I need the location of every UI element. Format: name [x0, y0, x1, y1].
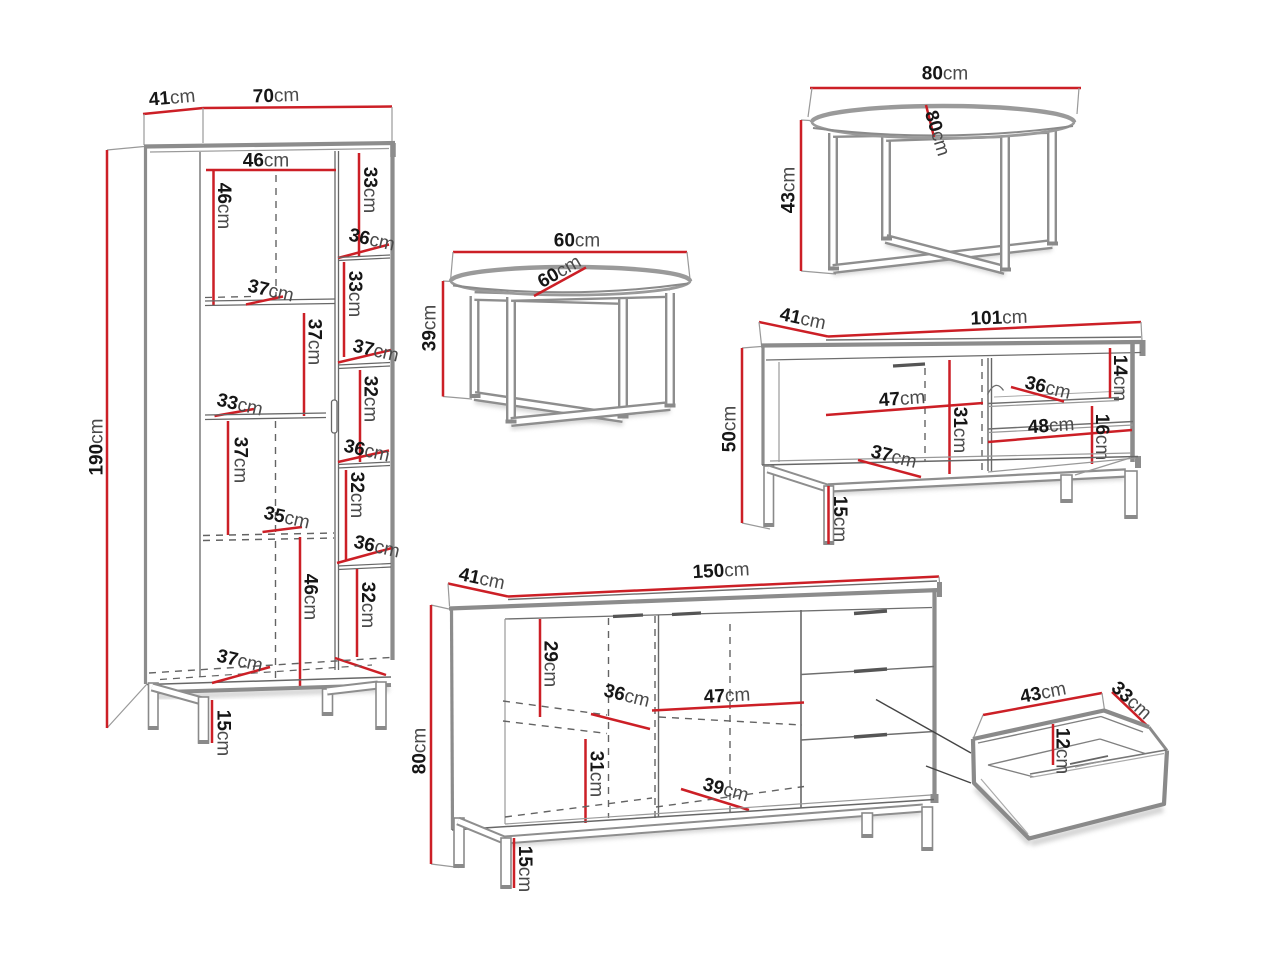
svg-text:41cm: 41cm — [148, 86, 196, 111]
svg-text:46cm: 46cm — [243, 151, 289, 172]
svg-text:80cm: 80cm — [410, 728, 431, 774]
svg-text:47cm: 47cm — [703, 684, 751, 707]
svg-text:48cm: 48cm — [1027, 414, 1075, 438]
svg-text:46cm: 46cm — [213, 183, 234, 229]
svg-text:70cm: 70cm — [252, 85, 299, 108]
svg-text:33cm: 33cm — [359, 167, 380, 213]
svg-text:80cm: 80cm — [922, 64, 968, 85]
svg-text:150cm: 150cm — [692, 559, 750, 583]
svg-text:47cm: 47cm — [878, 387, 926, 411]
svg-text:32cm: 32cm — [359, 376, 380, 422]
svg-text:15cm: 15cm — [829, 496, 850, 542]
svg-text:101cm: 101cm — [970, 307, 1028, 330]
svg-text:31cm: 31cm — [585, 751, 606, 797]
svg-text:15cm: 15cm — [514, 846, 535, 892]
svg-text:31cm: 31cm — [949, 407, 970, 453]
svg-text:14cm: 14cm — [1109, 355, 1130, 401]
svg-text:33cm: 33cm — [344, 271, 365, 317]
svg-text:15cm: 15cm — [212, 710, 233, 756]
svg-text:37cm: 37cm — [229, 437, 250, 483]
svg-text:39cm: 39cm — [420, 305, 441, 351]
svg-text:190cm: 190cm — [87, 418, 108, 475]
svg-text:43cm: 43cm — [779, 167, 800, 213]
svg-text:46cm: 46cm — [299, 574, 320, 620]
svg-text:32cm: 32cm — [357, 582, 378, 628]
svg-text:50cm: 50cm — [720, 406, 741, 452]
svg-text:32cm: 32cm — [346, 472, 367, 518]
svg-text:37cm: 37cm — [303, 319, 324, 365]
svg-text:12cm: 12cm — [1051, 728, 1072, 774]
svg-text:29cm: 29cm — [539, 641, 560, 687]
svg-text:60cm: 60cm — [554, 231, 600, 252]
